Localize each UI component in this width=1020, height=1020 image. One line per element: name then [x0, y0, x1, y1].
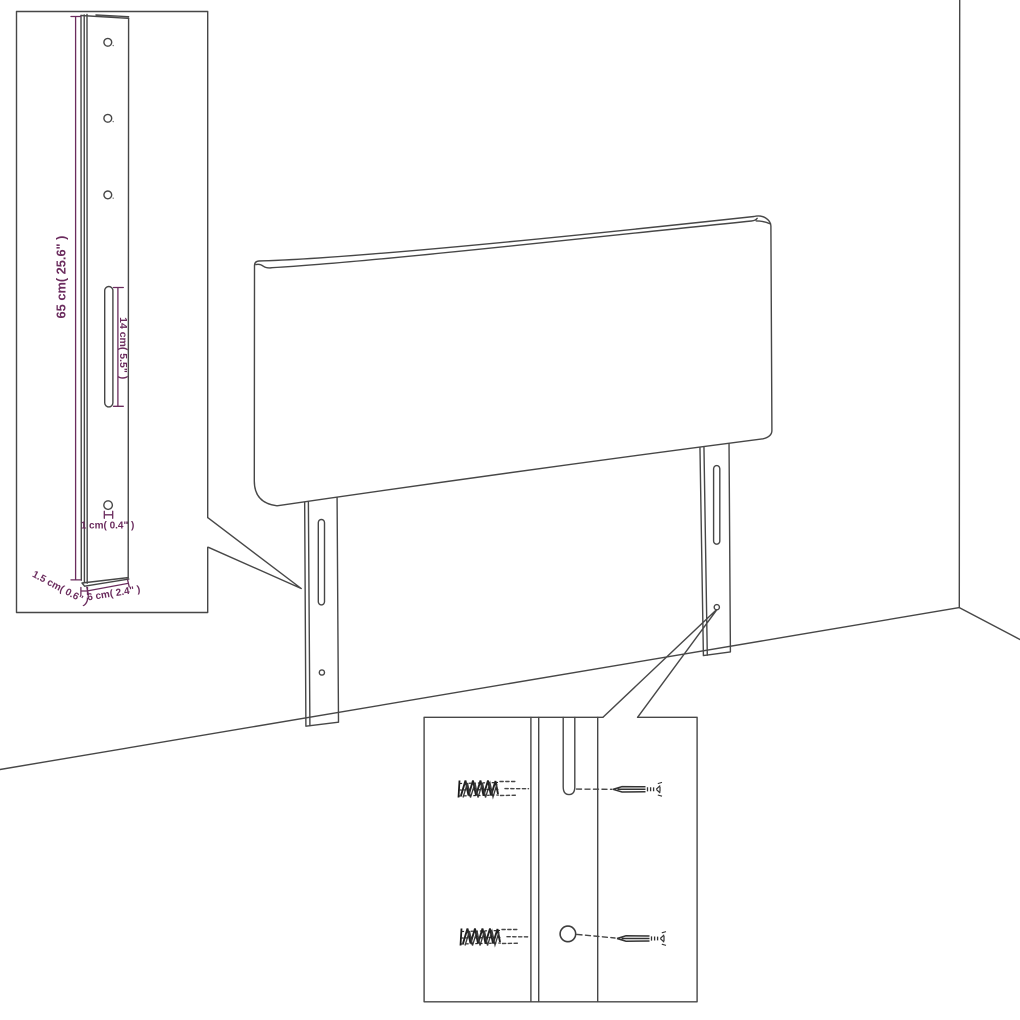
svg-text:65 cm( 25.6" ): 65 cm( 25.6" )	[54, 236, 69, 319]
svg-text:1 cm( 0.4" ): 1 cm( 0.4" )	[81, 521, 135, 532]
svg-text:14 cm( 5.5" ): 14 cm( 5.5" )	[117, 317, 129, 379]
